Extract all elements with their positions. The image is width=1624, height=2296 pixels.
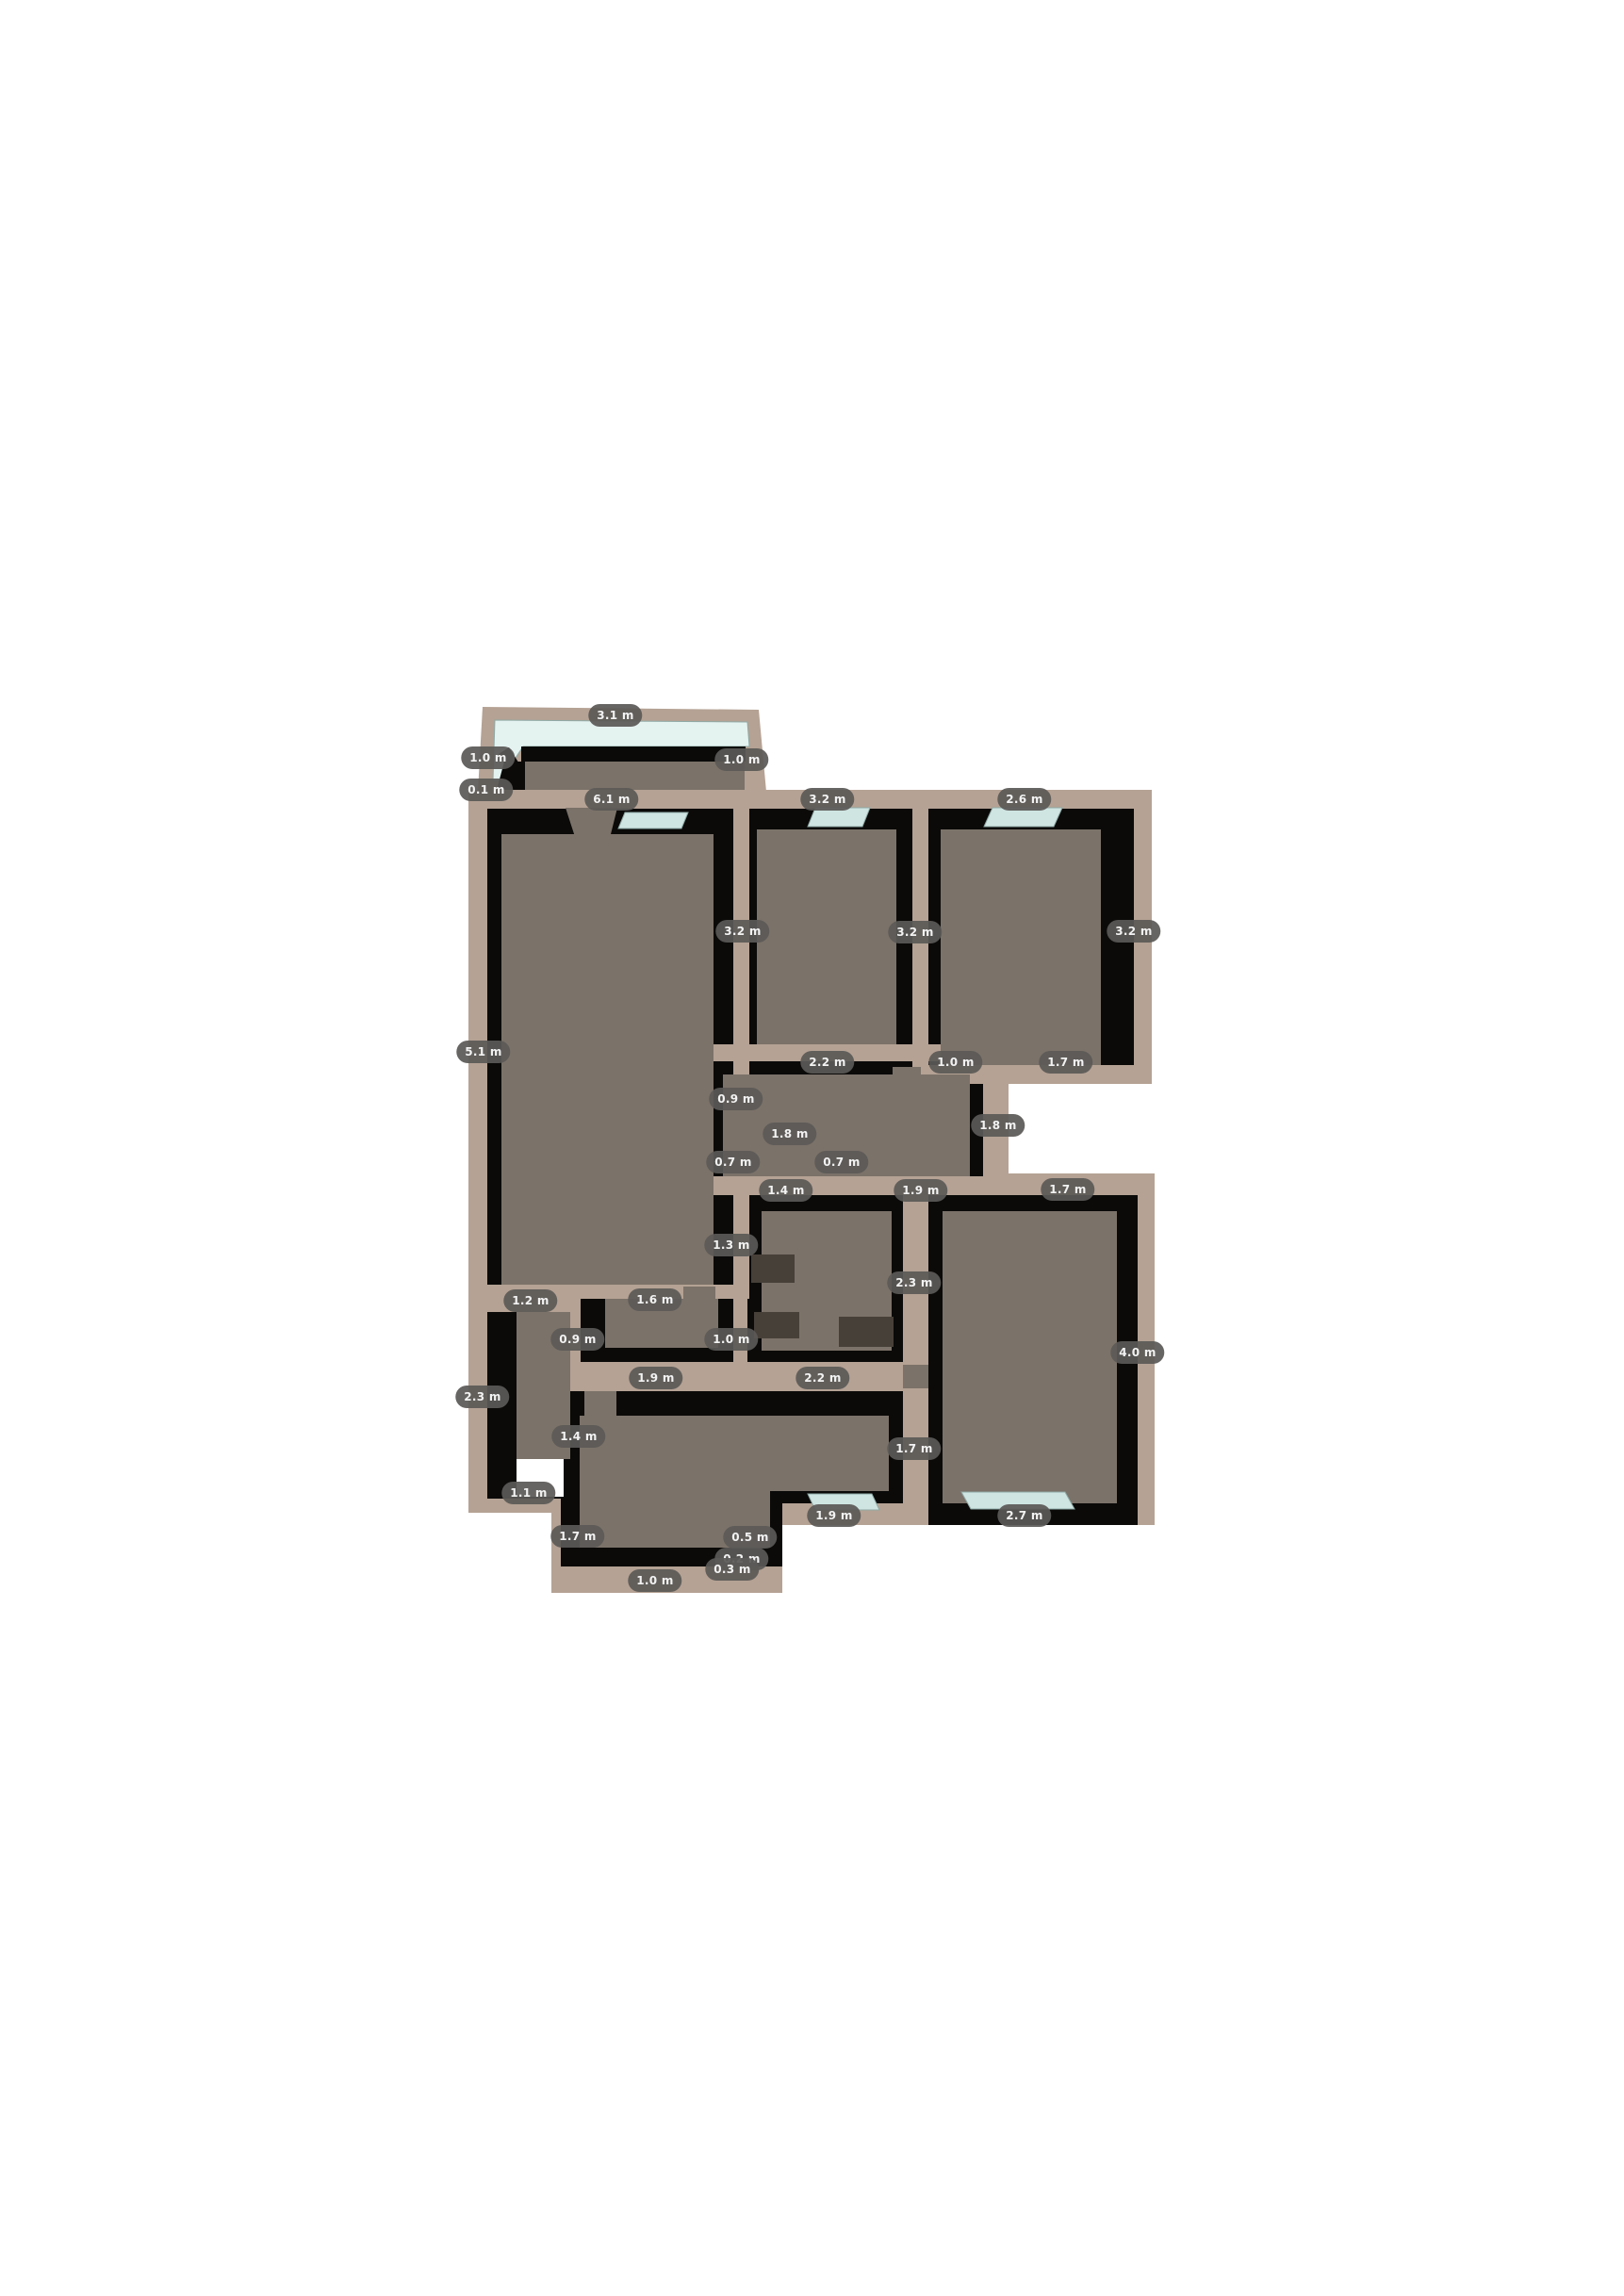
kitchen-door bbox=[584, 1391, 616, 1418]
floor-plan: 3.1 m1.0 m1.0 m0.1 m6.1 m3.2 m2.6 m3.2 m… bbox=[467, 697, 1169, 1602]
hall-floor bbox=[723, 1074, 970, 1176]
balcony bbox=[478, 707, 766, 792]
living-room-floor bbox=[501, 834, 714, 1285]
bedroom-1-window bbox=[808, 808, 870, 827]
furniture-block bbox=[839, 1317, 894, 1347]
wall-kitchen-right bbox=[903, 1388, 928, 1503]
wall-bedroom1-bedroom2 bbox=[912, 790, 928, 1067]
bedroom-3-window bbox=[961, 1492, 1074, 1509]
wall-kitchen-top bbox=[573, 1362, 903, 1391]
bedroom-3-floor bbox=[943, 1211, 1117, 1503]
wall-hall-bottom bbox=[710, 1176, 983, 1195]
floor-plan-drawing bbox=[467, 697, 1169, 1602]
wc-door bbox=[683, 1287, 715, 1299]
living-room-window bbox=[618, 812, 688, 828]
furniture-block bbox=[754, 1312, 799, 1338]
page-root: { "page": { "background": "#ffffff" }, "… bbox=[0, 0, 1624, 2296]
bedroom-3-door bbox=[903, 1365, 928, 1388]
bedroom-1-floor bbox=[757, 829, 896, 1044]
wall-bathroom-right bbox=[903, 1181, 928, 1362]
wall-notch-bottom bbox=[994, 1173, 1155, 1195]
wc-floor bbox=[605, 1299, 718, 1348]
bedroom-2-window bbox=[984, 808, 1062, 827]
kitchen-window bbox=[808, 1494, 879, 1510]
balcony-shadow bbox=[521, 746, 746, 762]
bedroom-2-floor bbox=[941, 829, 1101, 1065]
exterior-notch bbox=[517, 1459, 564, 1497]
wall-corridor-top bbox=[485, 1285, 570, 1312]
hall-door bbox=[893, 1067, 921, 1084]
corridor-floor bbox=[517, 1312, 570, 1459]
furniture-block bbox=[751, 1255, 795, 1283]
kitchen-floor bbox=[580, 1416, 889, 1548]
balcony-floor bbox=[525, 762, 745, 790]
